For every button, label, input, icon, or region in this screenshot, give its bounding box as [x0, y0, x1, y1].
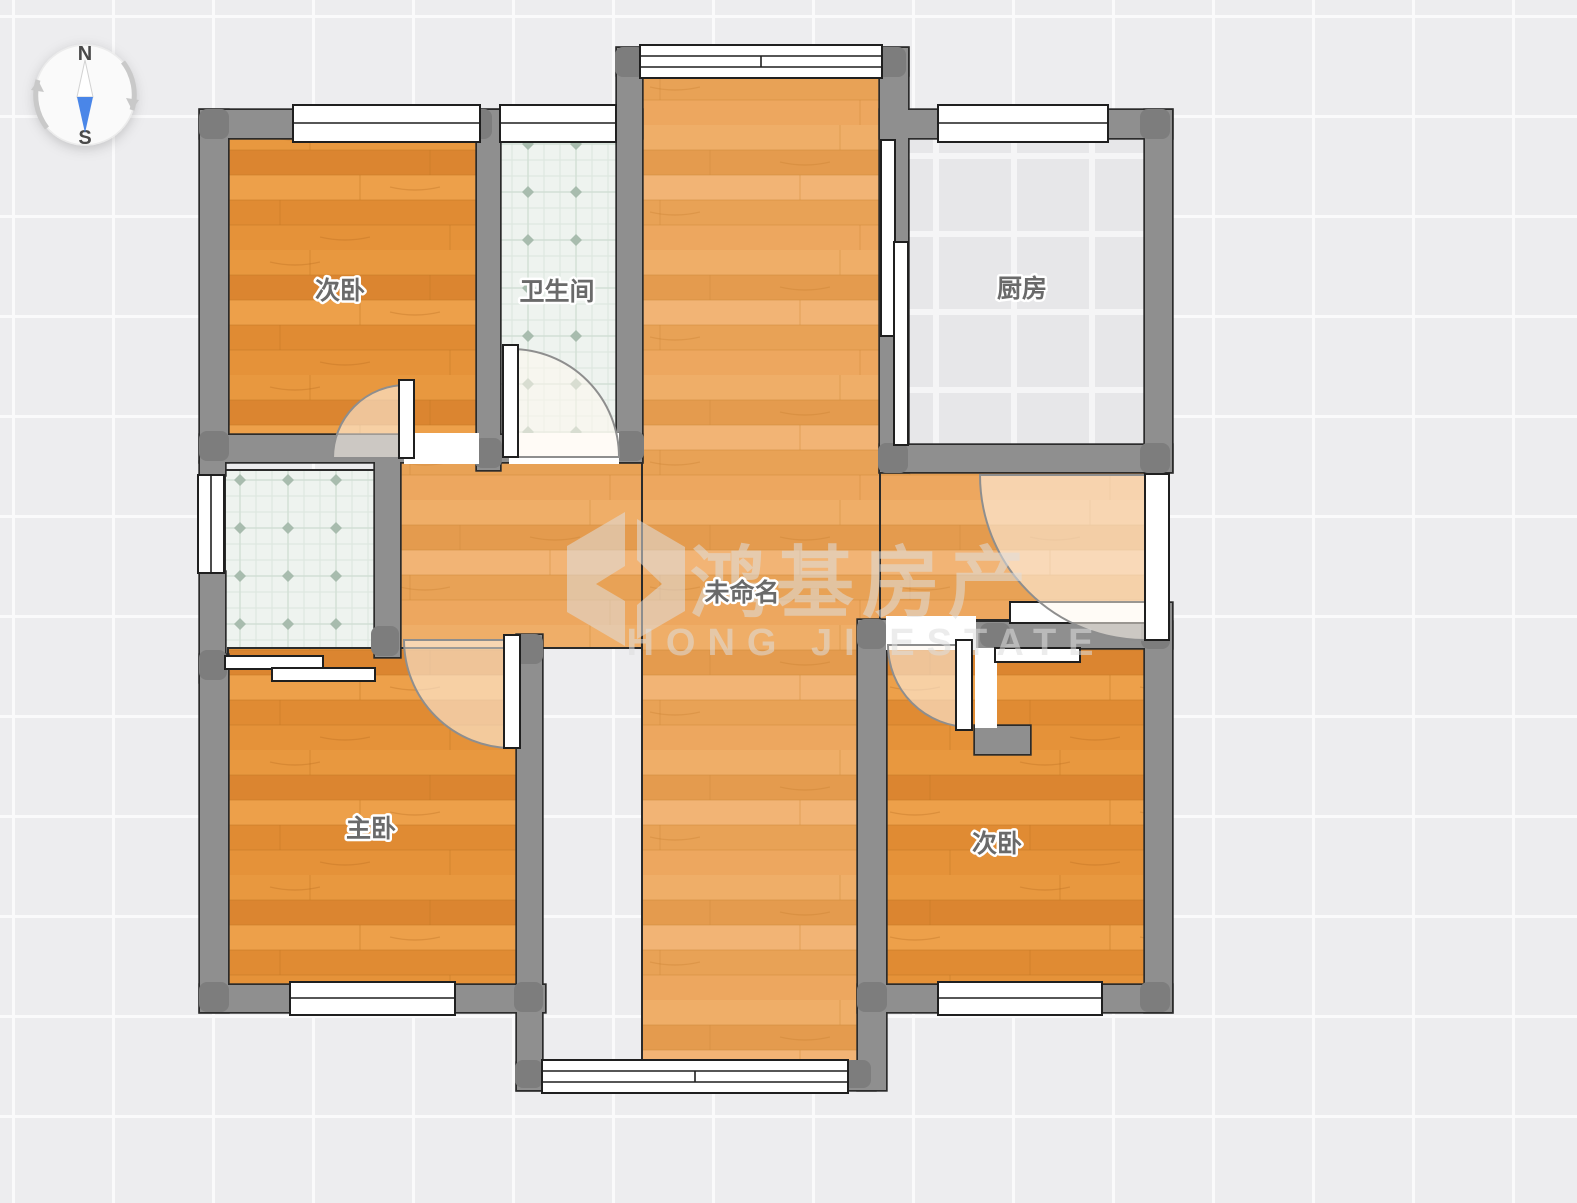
room-label-bathroom[interactable]: 卫生间 [519, 278, 594, 306]
compass[interactable]: N S [31, 43, 139, 149]
window-master-bedroom[interactable] [290, 982, 455, 1015]
room-label-bedroom-top-left[interactable]: 次卧 [315, 277, 365, 305]
floor-plan-canvas: 鸿基房产 HONG JI ESTATE 次卧 卫生间 厨房 未命名 主卧 次卧 … [0, 0, 1577, 1203]
window-living-bottom[interactable] [542, 1060, 848, 1093]
room-label-kitchen[interactable]: 厨房 [997, 274, 1047, 303]
window-bathroom[interactable] [500, 105, 616, 142]
window-living-top[interactable] [640, 45, 882, 78]
watermark-text-en: HONG JI ESTATE [626, 622, 1105, 664]
window-bedroom-bottom-right[interactable] [938, 982, 1102, 1015]
window-kitchen[interactable] [938, 105, 1108, 142]
room-label-master-bedroom[interactable]: 主卧 [346, 815, 396, 843]
room-label-living-unnamed[interactable]: 未命名 [704, 578, 779, 607]
room-floor-entry-tile[interactable] [225, 470, 375, 657]
window-bedroom-top-left[interactable] [293, 105, 480, 142]
floor-plan-page: { "compass": { "north": "N", "south": "S… [0, 0, 1577, 1203]
room-label-bedroom-bottom-right[interactable]: 次卧 [972, 830, 1022, 858]
window-entry-left[interactable] [198, 475, 224, 573]
